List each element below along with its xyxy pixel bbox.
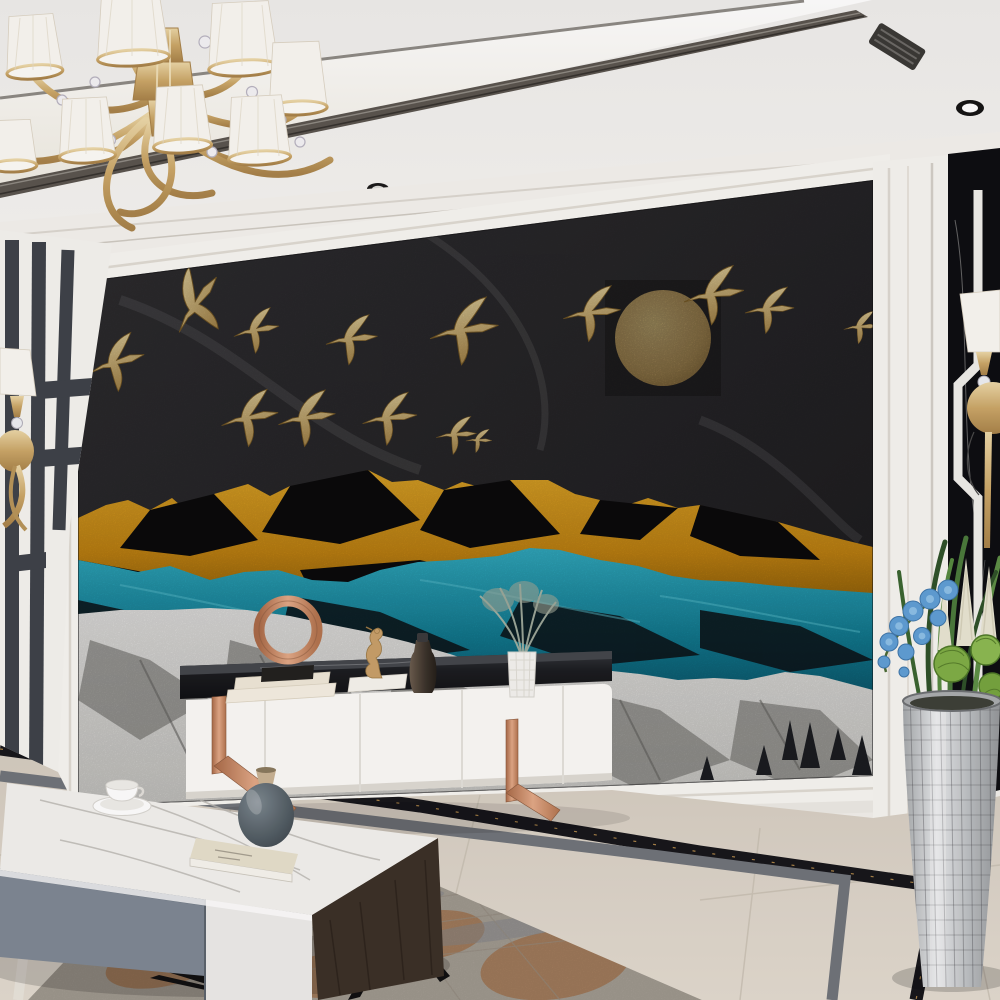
- scene-canvas: [0, 0, 1000, 1000]
- vignette-overlay: [0, 0, 1000, 1000]
- living-room-scene: [0, 0, 1000, 1000]
